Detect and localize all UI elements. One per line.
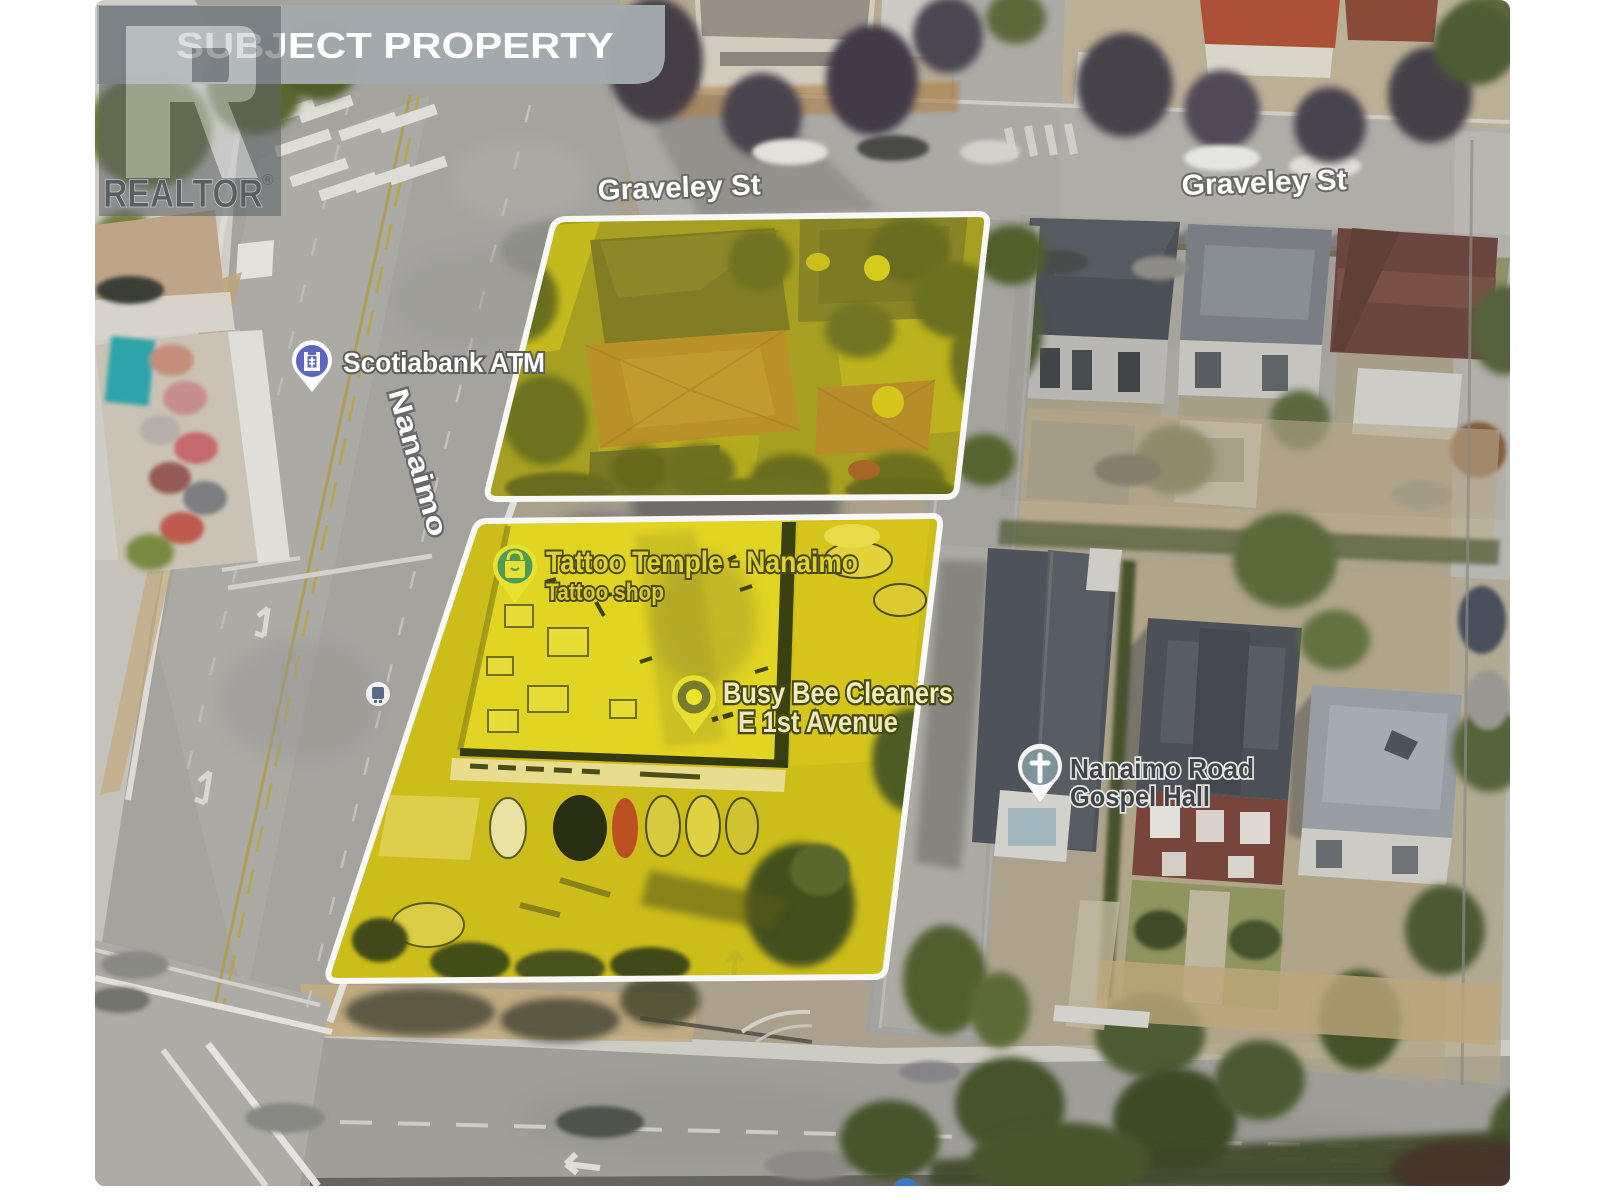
svg-text:REALTOR: REALTOR [103,172,263,216]
svg-text:®: ® [262,172,274,189]
svg-text:Nanaimo Road: Nanaimo Road [1070,753,1254,784]
svg-text:Graveley St: Graveley St [1181,164,1347,202]
svg-text:Tattoo shop: Tattoo shop [546,579,664,606]
svg-text:Gospel Hall: Gospel Hall [1070,781,1210,812]
svg-text:Tattoo Temple - Nanaimo: Tattoo Temple - Nanaimo [546,546,858,579]
svg-text:Graveley St: Graveley St [597,169,761,207]
svg-text:E 1st Avenue: E 1st Avenue [738,706,898,739]
svg-text:Scotiabank ATM: Scotiabank ATM [343,347,545,378]
